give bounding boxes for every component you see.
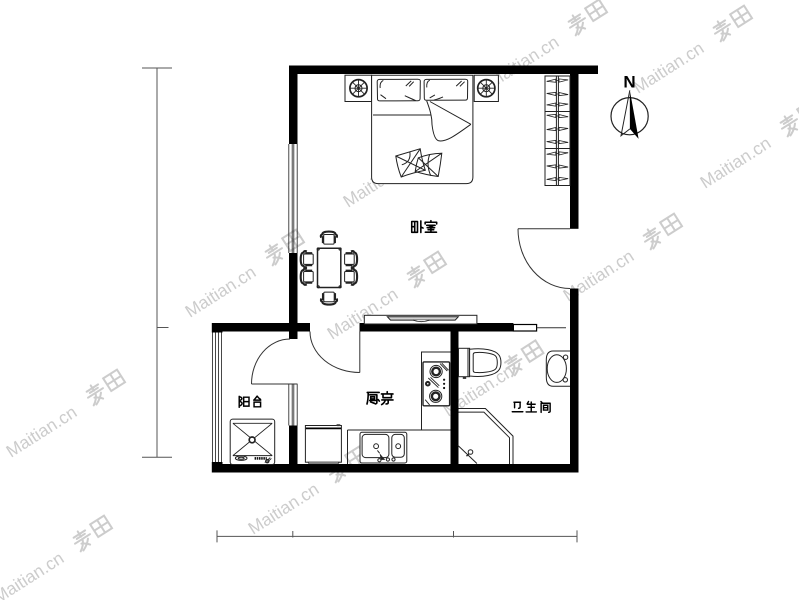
svg-text:N: N	[623, 73, 635, 92]
